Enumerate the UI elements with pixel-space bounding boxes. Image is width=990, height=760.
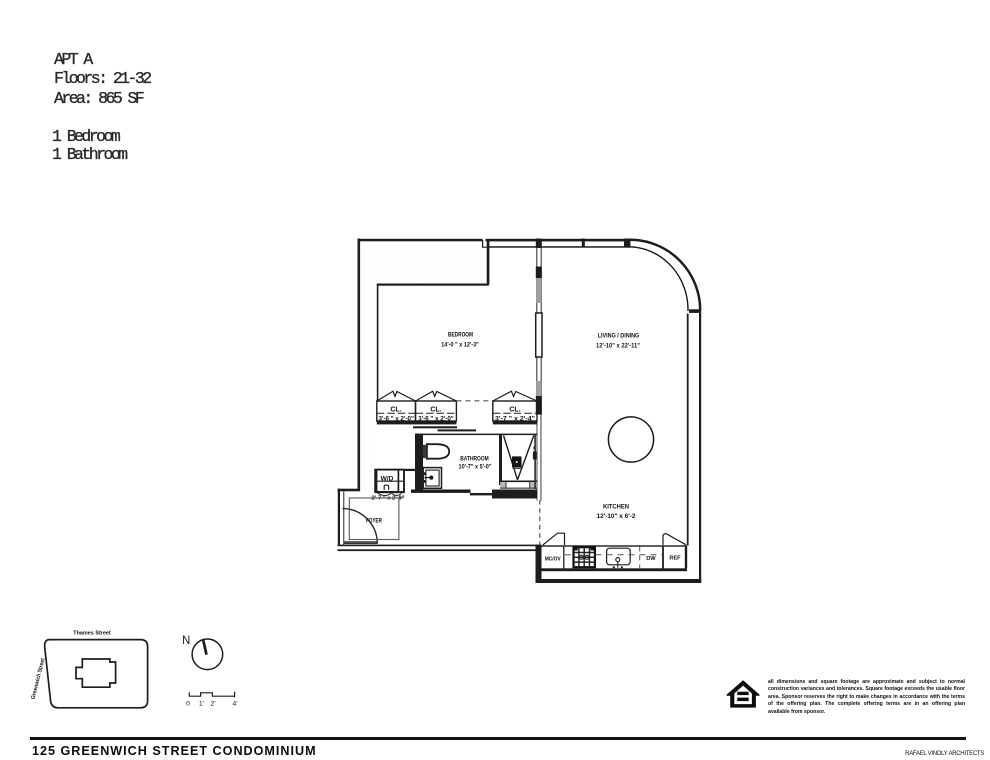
svg-text:12'-10" x 22'-11": 12'-10" x 22'-11" [596,342,640,349]
svg-text:3'-6 " x 2'-0": 3'-6 " x 2'-0" [378,415,414,422]
svg-text:14'-0 " x 12'-3": 14'-0 " x 12'-3" [441,341,479,348]
svg-text:LIVING / DINING: LIVING / DINING [598,333,640,340]
svg-text:KITCHEN: KITCHEN [603,504,629,511]
svg-text:0: 0 [186,701,190,708]
svg-text:REF: REF [669,555,681,561]
svg-text:MC/OV: MC/OV [545,557,561,563]
svg-text:N: N [182,635,190,647]
svg-text:3'-6 " x 2'-0": 3'-6 " x 2'-0" [418,415,454,422]
svg-text:1': 1' [199,701,204,708]
svg-text:BATHROOM: BATHROOM [460,456,489,463]
svg-text:W/D: W/D [381,475,394,482]
svg-text:CL.: CL. [509,406,520,413]
svg-text:4': 4' [233,701,238,708]
svg-text:CL.: CL. [430,406,441,413]
svg-text:FOYER: FOYER [366,518,382,525]
svg-text:Thames Street: Thames Street [73,631,111,637]
svg-text:DW: DW [646,556,656,562]
svg-text:Greenwich Street: Greenwich Street [31,658,47,700]
svg-text:12'-10" x 6'-2: 12'-10" x 6'-2 [597,513,637,520]
svg-text:10'-7" x 5'-0": 10'-7" x 5'-0" [459,463,492,470]
svg-text:CL.: CL. [390,406,401,413]
svg-text:BEDROOM: BEDROOM [448,332,473,339]
svg-text:3'-7 " x 2'-4": 3'-7 " x 2'-4" [495,415,535,422]
svg-text:2': 2' [211,701,216,708]
